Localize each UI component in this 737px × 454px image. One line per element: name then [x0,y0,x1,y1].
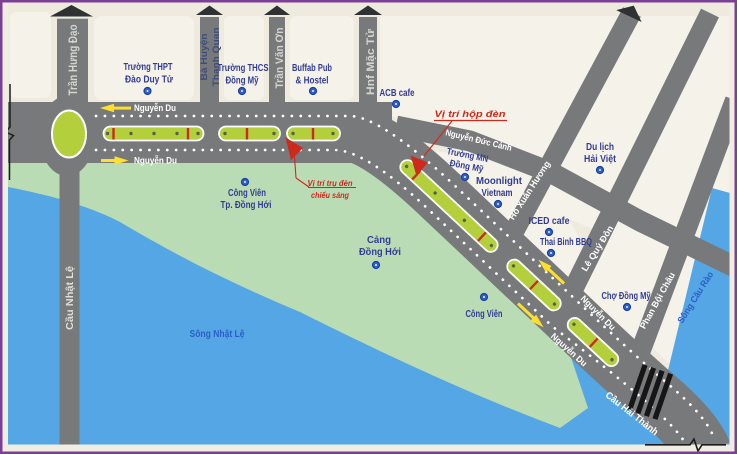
svg-text:Tp. Đồng Hới: Tp. Đồng Hới [221,200,272,211]
svg-text:Vietnam: Vietnam [482,188,513,199]
svg-text:Hải Việt: Hải Việt [584,154,617,165]
svg-text:chiếu sáng: chiếu sáng [311,190,350,200]
svg-text:Thanh Quan: Thanh Quan [211,27,222,86]
svg-text:Hnf Mặc Tử: Hnf Mặc Tử [365,29,377,95]
svg-text:Công Viên: Công Viên [228,188,266,199]
svg-text:Bà Huyện: Bà Huyện [199,33,210,80]
svg-text:Chợ Đồng Mỹ: Chợ Đồng Mỹ [602,291,651,302]
svg-text:ICED cafe: ICED cafe [529,216,570,227]
svg-text:Trường THPT: Trường THPT [124,62,173,73]
svg-text:Cảng: Cảng [367,235,391,246]
svg-text:Trần Văn Ơn: Trần Văn Ơn [274,27,286,88]
svg-text:ACB cafe: ACB cafe [380,88,415,99]
svg-text:Trần Hưng Đạo: Trần Hưng Đạo [66,25,80,96]
svg-text:Sông Nhật Lệ: Sông Nhật Lệ [190,329,245,340]
svg-text:& Hostel: & Hostel [296,76,329,87]
svg-text:Buffab Pub: Buffab Pub [292,63,332,74]
svg-text:Cầu Nhật Lệ: Cầu Nhật Lệ [64,266,76,330]
svg-text:Công Viên: Công Viên [466,309,503,320]
svg-text:Đào Duy Tử: Đào Duy Tử [125,75,174,86]
svg-text:Nguyễn Du: Nguyễn Du [134,155,177,166]
svg-text:Nguyễn Du: Nguyễn Du [134,102,176,113]
svg-text:Trường THCS: Trường THCS [218,63,269,74]
svg-text:Vị trí trụ đèn: Vị trí trụ đèn [308,178,353,188]
svg-text:Thai Binh BBQ: Thai Binh BBQ [540,237,592,248]
svg-text:Moonlight: Moonlight [476,176,523,187]
svg-text:Du lịch: Du lịch [586,142,614,153]
svg-text:Đồng Mỹ: Đồng Mỹ [226,76,259,87]
svg-text:Vị trí hộp đèn: Vị trí hộp đèn [435,109,506,120]
svg-text:Đồng Hới: Đồng Hới [359,247,401,258]
